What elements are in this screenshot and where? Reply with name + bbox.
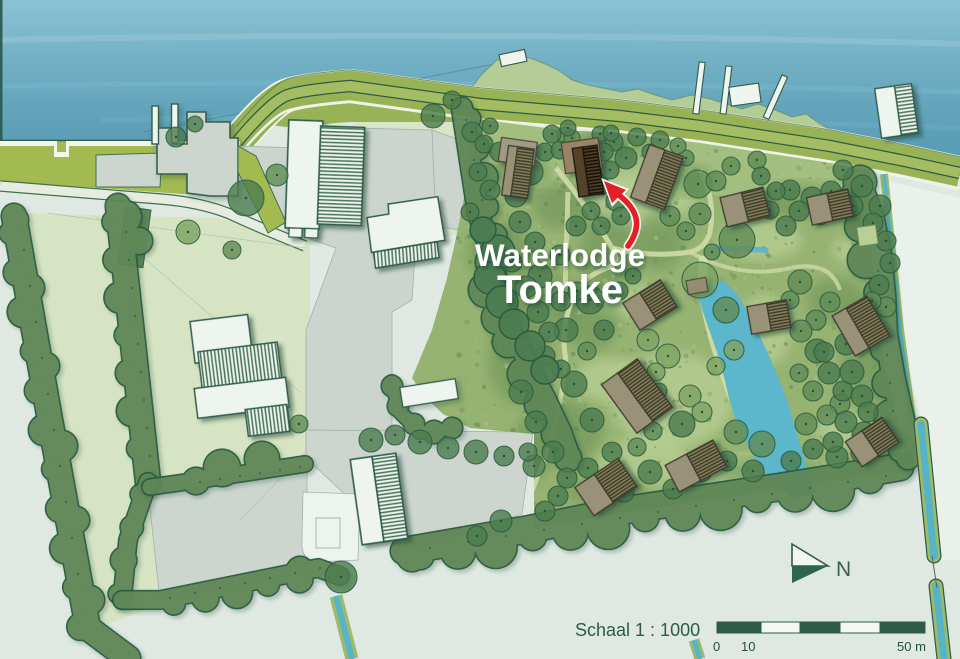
svg-text:N: N xyxy=(836,558,851,581)
svg-text:Schaal 1 : 1000: Schaal 1 : 1000 xyxy=(575,620,700,640)
svg-text:50 m: 50 m xyxy=(897,639,926,654)
svg-text:Tomke: Tomke xyxy=(497,268,623,312)
svg-text:10: 10 xyxy=(741,639,755,654)
svg-text:0: 0 xyxy=(713,639,720,654)
